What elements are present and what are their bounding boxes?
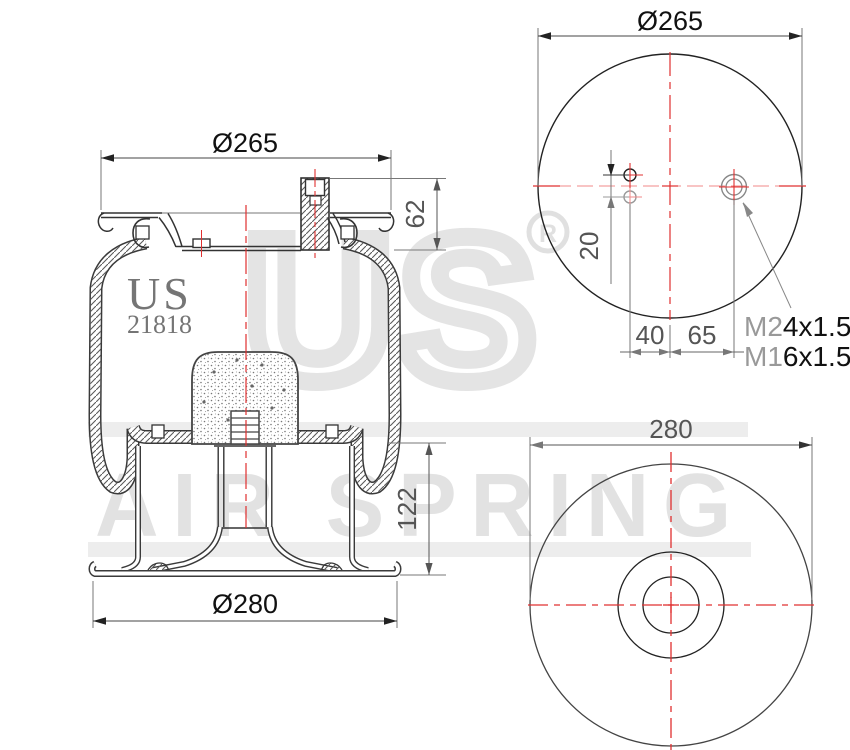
flange-bead-right — [326, 425, 338, 438]
hole-thread-callout: M16x1.5 — [744, 341, 850, 372]
bead-wire-left — [136, 226, 149, 239]
stud-thread-callout: M24x1.5 — [744, 311, 850, 342]
top-dim-hole-spacing: 20 — [574, 232, 604, 261]
bottom-dim-diameter: 280 — [649, 414, 692, 444]
top-view-holes — [617, 163, 749, 207]
top-dim-diameter: Ø265 — [637, 6, 703, 36]
bumper-bolt — [231, 411, 259, 444]
dim-lower-height: 122 — [392, 487, 422, 530]
top-dim-stud-offset: 65 — [688, 320, 717, 350]
thread-leader-line — [743, 203, 791, 308]
dim-plate-diameter: Ø265 — [212, 128, 278, 158]
svg-text:R: R — [539, 220, 557, 248]
top-view-centerlines — [533, 52, 806, 320]
plate-curl-left — [98, 213, 113, 231]
bead-wire-right — [341, 226, 354, 239]
leader-arrowhead — [743, 202, 753, 217]
brand-part-number: 21818 — [127, 310, 192, 339]
air-spring-technical-drawing: US R AIR SPRING — [0, 0, 850, 750]
drawing-canvas: US R AIR SPRING — [0, 0, 850, 750]
top-dim-holes-offset: 40 — [636, 320, 665, 350]
top-view-dimensions: Ø265 20 40 65 M24x1.5 M16x1.5 — [538, 6, 850, 372]
dim-base-diameter: Ø280 — [212, 589, 278, 619]
dim-stud-height: 62 — [400, 200, 430, 229]
top-view: Ø265 20 40 65 M24x1.5 M16x1.5 — [533, 6, 850, 372]
flange-bead-left — [152, 425, 164, 438]
brand-stamp: US 21818 — [127, 268, 192, 339]
